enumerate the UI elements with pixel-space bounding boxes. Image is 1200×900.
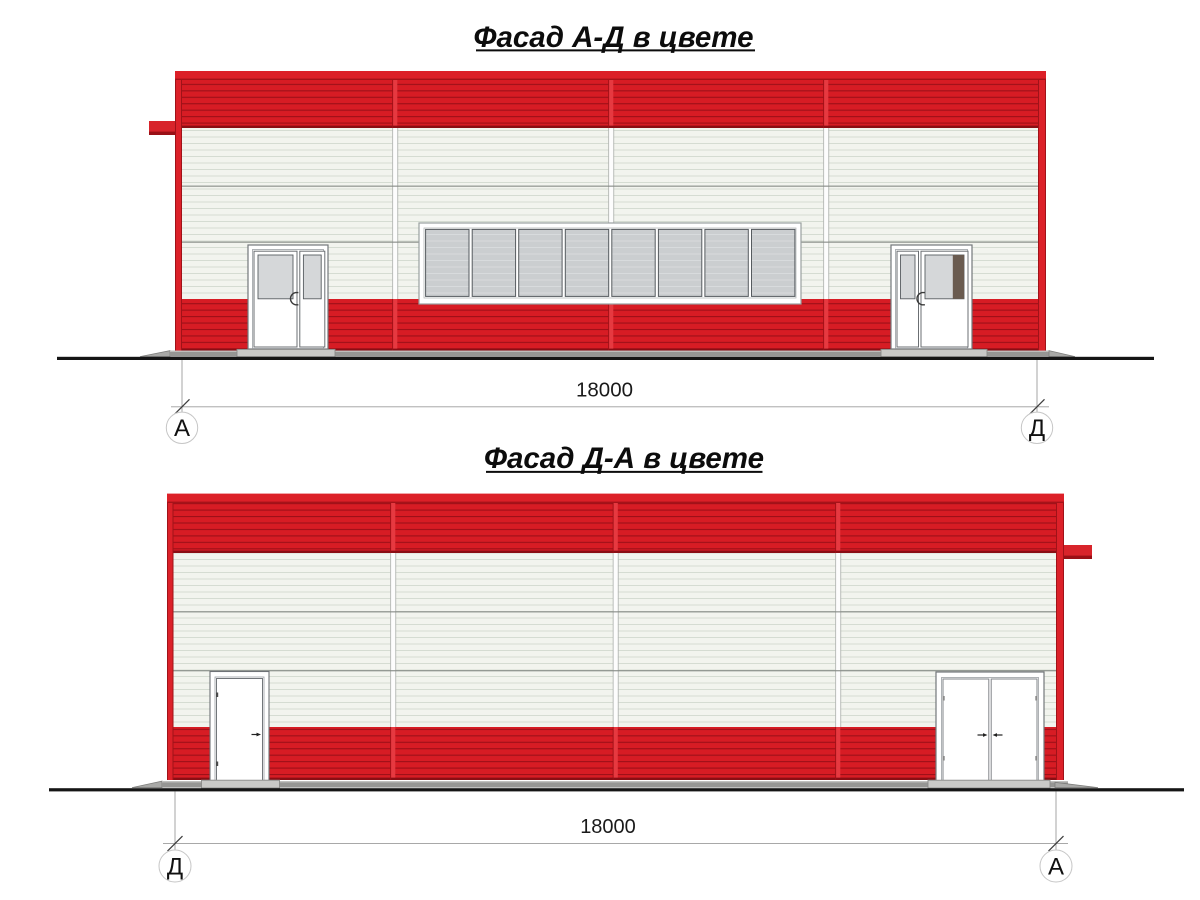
svg-text:Фасад А-Д в цвете: Фасад А-Д в цвете xyxy=(473,21,753,54)
svg-text:18000: 18000 xyxy=(576,379,633,402)
svg-text:А: А xyxy=(174,415,190,442)
svg-text:Фасад Д-А в цвете: Фасад Д-А в цвете xyxy=(484,442,764,475)
svg-text:А: А xyxy=(1048,853,1064,880)
svg-text:Д: Д xyxy=(167,853,183,880)
svg-text:Д: Д xyxy=(1029,415,1045,442)
svg-text:18000: 18000 xyxy=(580,816,636,838)
